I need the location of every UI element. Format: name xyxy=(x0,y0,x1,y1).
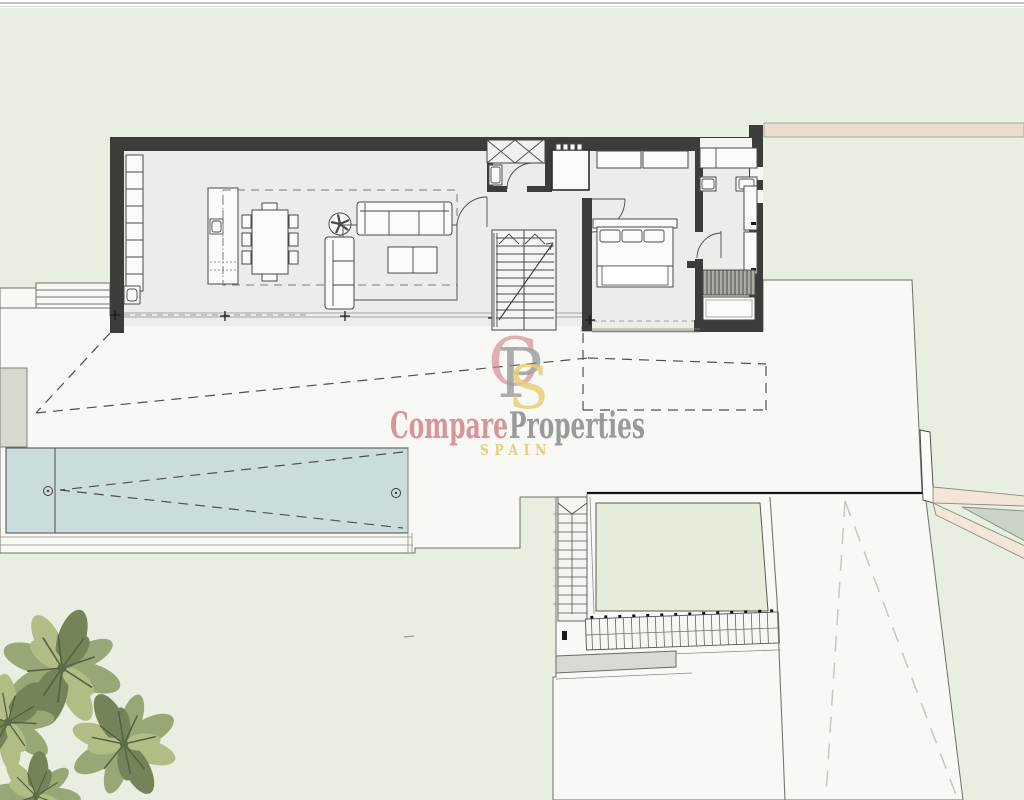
sofa-top xyxy=(357,202,452,235)
wall-wc-right xyxy=(545,140,552,192)
wall-top xyxy=(110,137,763,151)
wall-bottom-right xyxy=(694,320,763,332)
closet xyxy=(597,151,641,168)
wall-left xyxy=(110,137,124,333)
sheet-top-border xyxy=(0,0,1024,8)
dining-chair xyxy=(262,274,277,281)
dining-chair xyxy=(262,203,277,210)
wall-wc-bottom-a xyxy=(487,186,507,192)
dining-chair xyxy=(289,233,298,246)
wall-partition-bedroom xyxy=(582,198,592,331)
closet xyxy=(643,151,688,168)
shelf-unit xyxy=(744,232,757,274)
left-edge-structure xyxy=(0,288,36,308)
exterior-steps-left xyxy=(36,283,110,308)
main-staircase xyxy=(492,230,556,330)
watermark-spain: SPAIN xyxy=(480,441,552,459)
floor-plan-svg: C P S Compare Properties SPAIN xyxy=(0,0,1024,800)
kitchen-cabinets xyxy=(126,155,143,291)
dining-chair xyxy=(242,251,251,264)
utility-box xyxy=(552,144,589,190)
exterior-staircase xyxy=(553,497,587,640)
courtyard xyxy=(590,497,768,614)
shaft-hatch xyxy=(487,140,545,163)
dining-chair xyxy=(242,215,251,228)
wall-partition-bath-b xyxy=(695,259,703,321)
building xyxy=(110,125,763,333)
coffee-table xyxy=(388,247,437,273)
floor-plan-page: C P S Compare Properties SPAIN xyxy=(0,0,1024,800)
bed xyxy=(593,219,677,287)
light-well xyxy=(703,297,755,320)
floor-grate xyxy=(703,270,755,320)
sofa-left xyxy=(325,237,354,309)
wall-stub xyxy=(687,261,699,268)
swimming-pool xyxy=(0,448,413,553)
boundary-band xyxy=(764,123,1024,137)
left-edge-block xyxy=(0,368,27,447)
dining-chair xyxy=(289,215,298,228)
dining-chair xyxy=(289,251,298,264)
wall-wc-bottom-b xyxy=(527,186,552,192)
dining-chair xyxy=(242,233,251,246)
